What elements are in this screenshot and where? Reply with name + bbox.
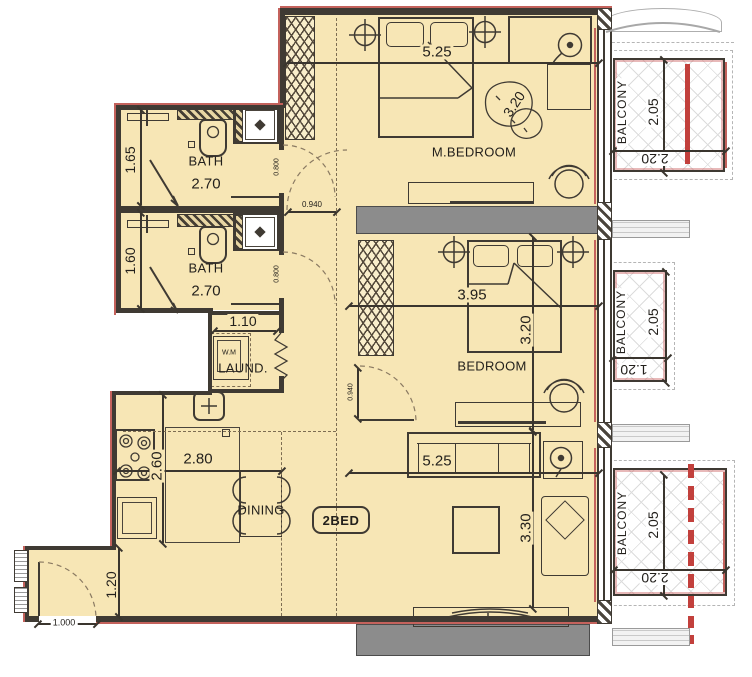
balcony-top-depth-label: 2.05 <box>646 96 660 127</box>
right-wall-stub-2 <box>597 202 612 240</box>
bath-top-rail-post <box>146 108 148 126</box>
laundry-left-wall <box>208 311 212 393</box>
balcony-divider-slab-1 <box>612 220 690 238</box>
bath-top-label: BATH <box>189 155 224 168</box>
master-left-wall <box>280 15 285 108</box>
bath-right-wall-1 <box>279 105 284 150</box>
balcony-bottom-depth-label: 2.05 <box>646 509 660 540</box>
balcony-middle-width-label: 1.20 <box>618 363 649 377</box>
bedroom-bed-pillow-1 <box>473 245 509 267</box>
laundry-right-wall-2 <box>279 376 284 393</box>
neighbor-balcony-rail-dash <box>602 42 734 43</box>
unit-type-badge-text: 2BED <box>323 513 360 528</box>
laundry-width-label: 1.10 <box>227 314 258 328</box>
balcony-bottom-width-label: 2.20 <box>639 571 670 585</box>
fridge-inner <box>122 502 152 534</box>
balcony-divider-slab-3 <box>612 628 690 646</box>
bath-top-closet-rail <box>127 113 169 121</box>
bath-right-wall-2 <box>279 193 284 213</box>
dim-line-balcony-middle-width <box>613 357 667 359</box>
neighbor-balcony-above <box>604 8 722 32</box>
dim-line-master-width <box>287 62 598 64</box>
bath-right-wall-3 <box>279 213 284 255</box>
slab-between-bedrooms <box>356 206 598 234</box>
right-wall-red-1 <box>594 28 596 204</box>
kitchen-depth-label: 2.60 <box>150 449 165 482</box>
dim-line-balcony-middle-depth <box>665 272 667 382</box>
floor-plan-canvas: M.BEDROOM 5.25 3.20 BEDROOM 3.95 3.20 5.… <box>0 0 752 677</box>
right-wall-outer-line <box>610 8 612 624</box>
bedroom-depth-label: 3.20 <box>519 313 534 346</box>
right-wall-stub-4 <box>597 600 612 624</box>
kitchen-left-wall-red <box>110 391 112 550</box>
master-desk <box>547 64 591 110</box>
right-wall-stub-1 <box>597 8 612 30</box>
living-width-label: 5.25 <box>420 454 453 469</box>
entry-door-width-label: 1.000 <box>51 619 78 628</box>
master-bedroom-label: M.BEDROOM <box>432 146 516 159</box>
bath-bottom-shower-wall <box>235 215 243 249</box>
bottom-wall-red <box>96 622 602 624</box>
balcony-bottom-section-bar <box>688 464 694 608</box>
balcony-top-section-bar <box>685 64 690 164</box>
utility-panel-2 <box>14 587 28 613</box>
balcony-bottom-label: BALCONY <box>616 489 628 557</box>
bath-bottom-depth-label: 1.60 <box>123 245 137 276</box>
bedroom-wardrobe <box>358 240 394 356</box>
bath-bottom-closet-rail <box>127 220 169 228</box>
dim-line-hall-opening <box>288 211 336 213</box>
right-wall-stub-3 <box>597 422 612 448</box>
master-dresser <box>508 16 592 64</box>
bath-bottom-label: BATH <box>189 262 224 275</box>
master-wardrobe <box>285 16 315 140</box>
sofa-divider-2 <box>498 443 499 474</box>
sofa-arm-left <box>418 443 419 474</box>
bath-top-toilet <box>199 119 227 157</box>
hall-opening-label: 0.940 <box>300 201 324 209</box>
bedroom-label: BEDROOM <box>457 360 526 373</box>
right-wall-red-2 <box>594 240 596 422</box>
balcony-top-label: BALCONY <box>616 78 628 146</box>
utility-panel-1 <box>14 550 28 582</box>
laundry-right-wall-1 <box>279 311 284 333</box>
kitchen-living-dashed-line <box>281 432 282 616</box>
dim-line-bedroom-door <box>357 368 359 418</box>
lobby-bottom-stub <box>25 616 39 622</box>
laundry-bottom-wall <box>208 389 283 393</box>
sofa-back-line <box>417 443 531 444</box>
bath-top-shower-wall <box>235 108 243 142</box>
dim-line-living-width <box>349 472 598 474</box>
dim-line-bedroom-width <box>349 305 598 307</box>
master-tv <box>450 201 534 204</box>
slab-bottom <box>356 624 590 656</box>
sofa-arm-right <box>529 443 530 474</box>
window-glazing-master <box>603 28 605 204</box>
balcony-middle-depth-label: 2.05 <box>646 306 660 337</box>
bedroom-width-label: 3.95 <box>455 288 488 303</box>
bath-bottom-width-label: 2.70 <box>189 284 222 299</box>
entry-depth-label: 1.20 <box>104 569 118 600</box>
right-wall-inner-line <box>597 8 599 624</box>
balcony-middle-label: BALCONY <box>615 288 627 356</box>
dim-line-bath-bottom-depth <box>140 213 142 308</box>
balcony-top-width-label: 2.20 <box>639 152 670 166</box>
kitchen-counter <box>165 427 240 543</box>
living-depth-label: 3.30 <box>519 511 534 544</box>
dining-label: DINING <box>237 504 284 517</box>
unit-type-badge: 2BED <box>312 506 370 534</box>
bedroom-door-width-label: 0.940 <box>348 383 355 401</box>
balcony-bottom-edge-red <box>723 472 725 592</box>
bath-top-width-label: 2.70 <box>189 177 222 192</box>
dim-line-laundry-width <box>214 330 276 332</box>
kitchen-width-label: 2.80 <box>181 452 214 467</box>
master-width-label: 5.25 <box>420 45 453 60</box>
balcony-divider-slab-2 <box>612 424 690 442</box>
bath-bottom-door-width-label: 0.800 <box>274 265 281 283</box>
master-left-wall-red <box>278 8 280 108</box>
bath-bottom-wall <box>116 308 213 313</box>
bath-top-door-width-label: 0.800 <box>274 158 281 176</box>
top-wall <box>280 8 612 15</box>
master-bed-pillow-1 <box>386 22 424 47</box>
bath-top-depth-label: 1.65 <box>123 144 137 175</box>
window-glazing-bedroom <box>603 240 605 422</box>
bath-bottom-toilet <box>199 226 227 264</box>
sofa-divider-1 <box>455 443 456 474</box>
bedroom-bed-pillow-2 <box>517 245 553 267</box>
bath-bottom-bidet-spray <box>188 248 195 255</box>
laundry-label: LAUND. <box>218 362 267 375</box>
window-glazing-living <box>603 448 605 602</box>
kitchen-sink <box>193 391 225 421</box>
bath-top-bidet-spray <box>188 141 195 148</box>
lobby-top-wall <box>25 546 115 550</box>
bath-bottom-rail-post <box>146 215 148 233</box>
entry-lobby-floor <box>28 548 160 616</box>
kitchen-dashed-line <box>123 431 336 432</box>
dim-line-bath-top-depth <box>140 110 142 205</box>
coffee-table <box>452 506 500 554</box>
washing-machine-label: W.M <box>222 350 236 357</box>
dim-line-kitchen-width <box>117 470 281 472</box>
